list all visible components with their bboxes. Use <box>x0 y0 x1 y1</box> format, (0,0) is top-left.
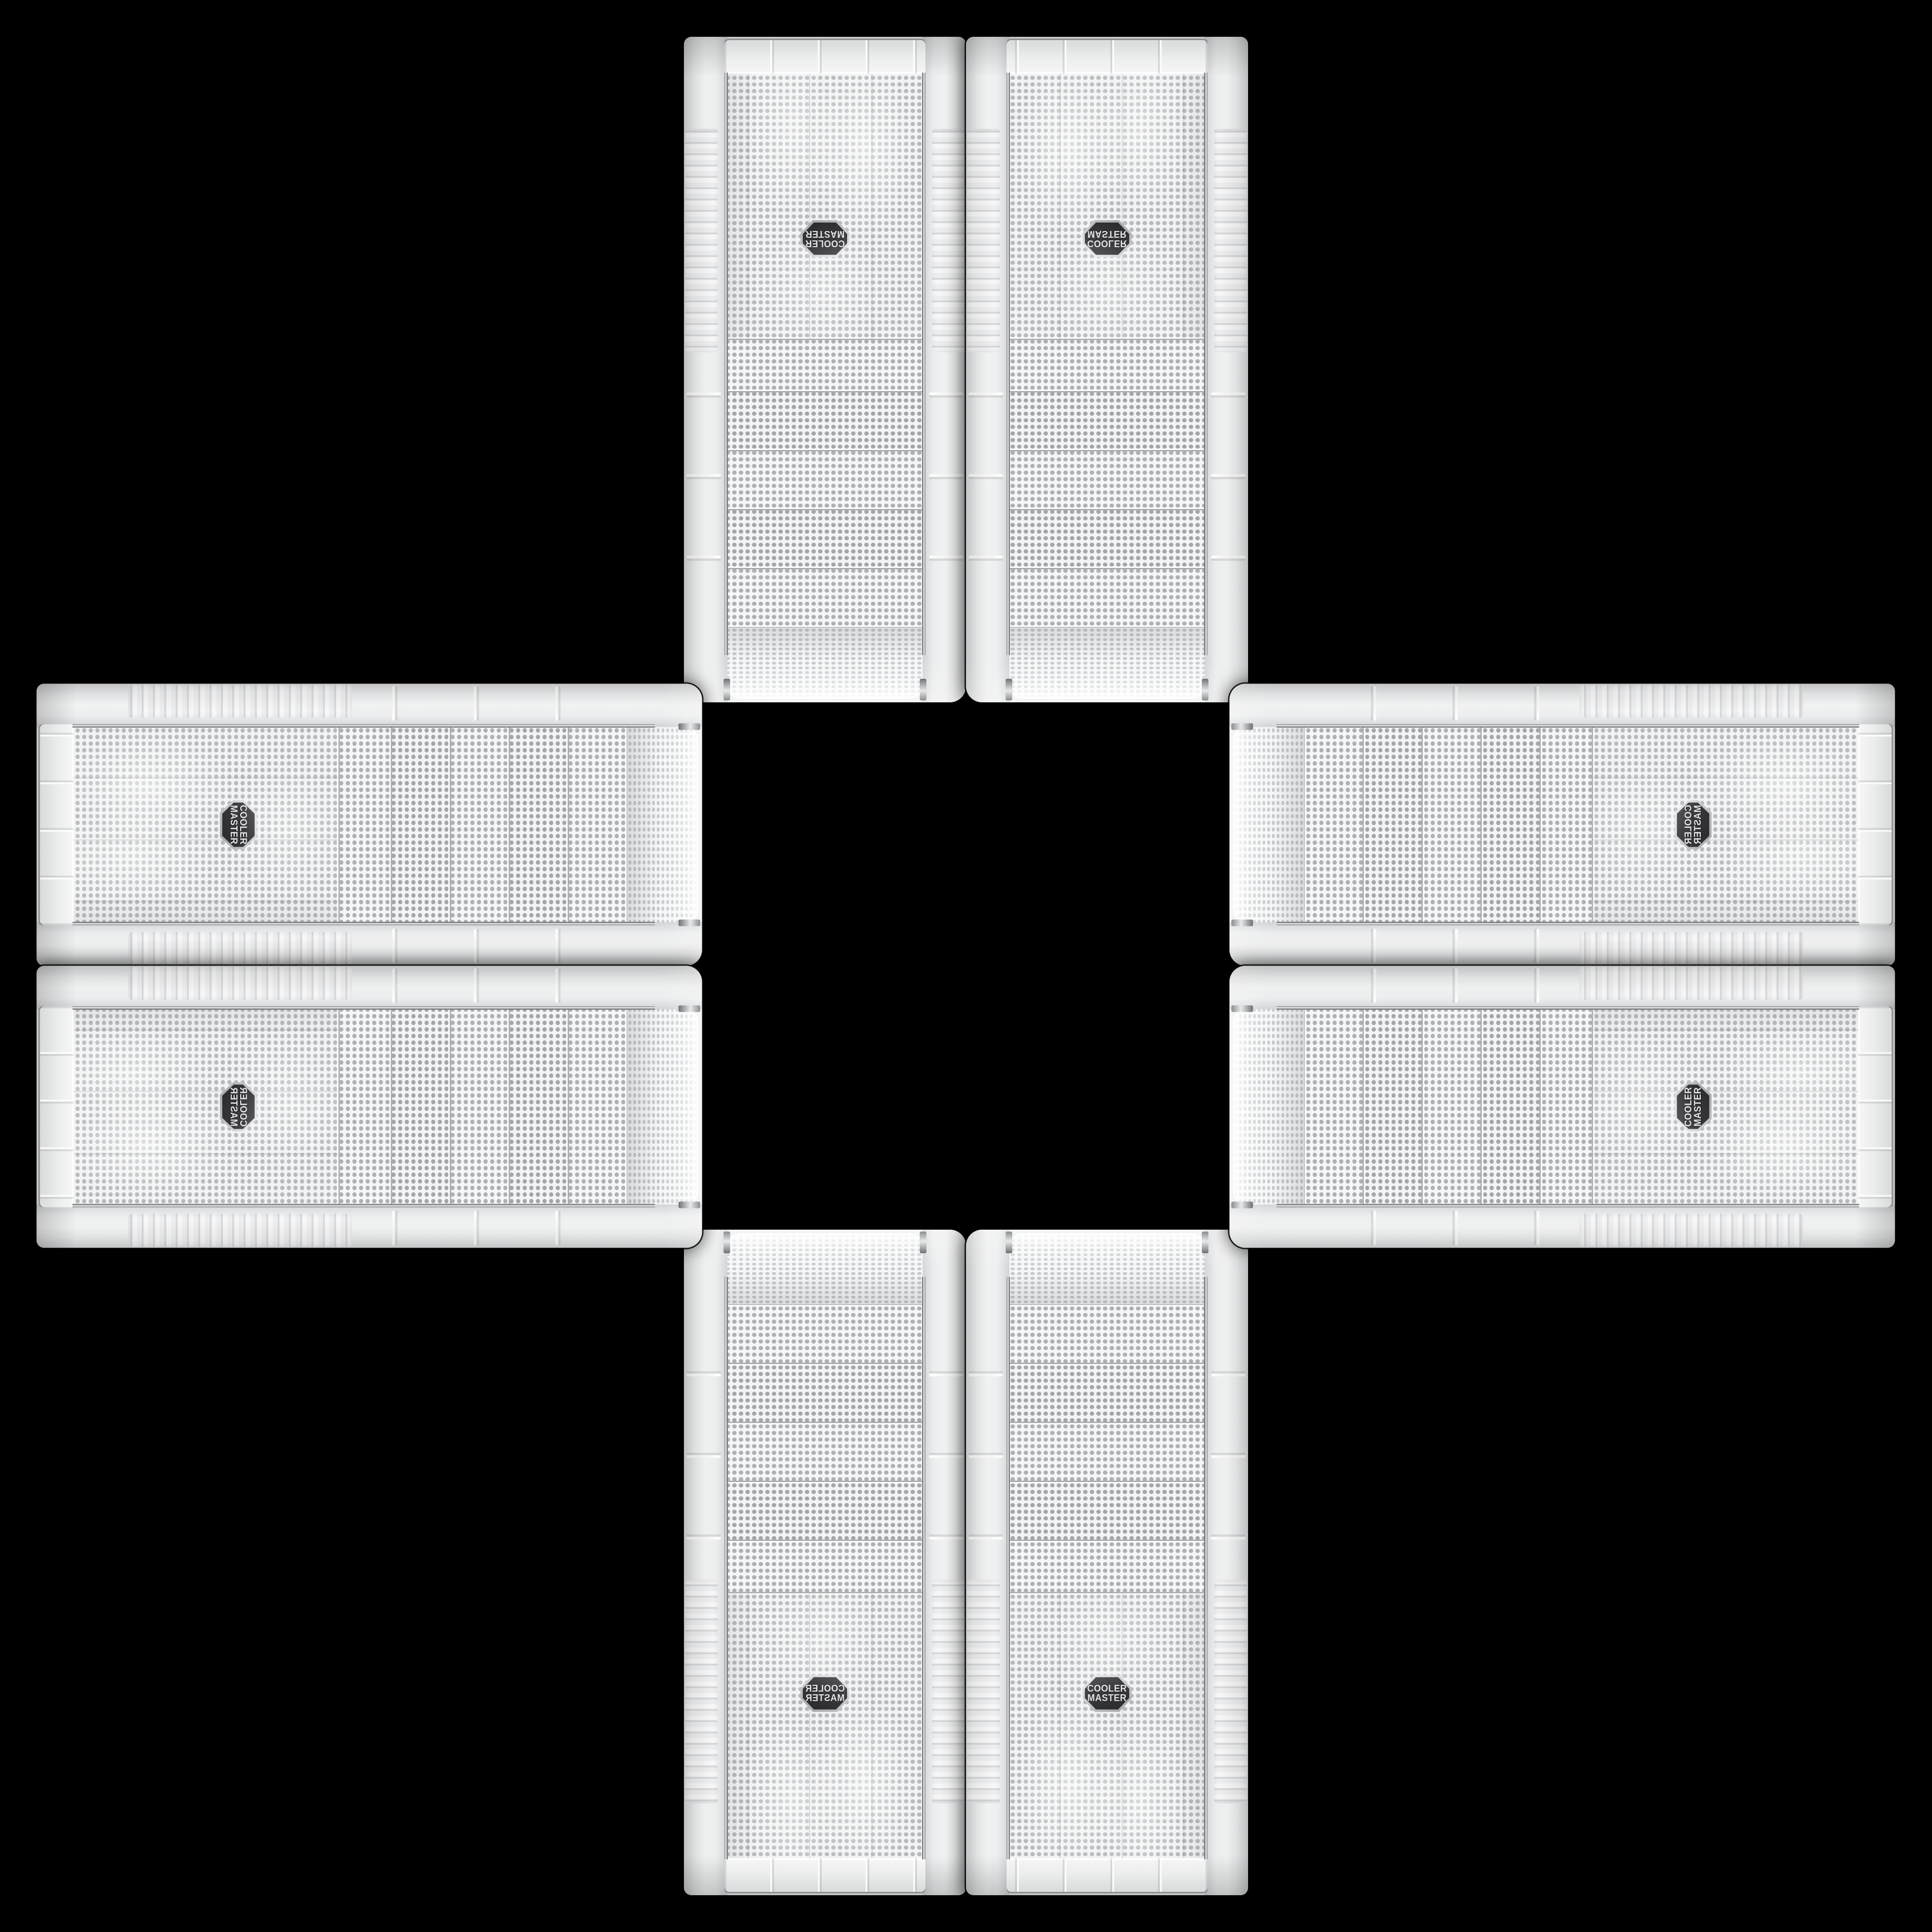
badge-face: COOLER MASTER <box>1085 1677 1129 1710</box>
chrome-trim-left <box>922 73 925 655</box>
case-right-top: COOLER MASTER <box>1230 684 1895 966</box>
curved-mesh-bulge <box>628 727 699 923</box>
rail-chevron-ribs <box>1214 129 1247 352</box>
drive-bay-cover <box>727 1304 923 1363</box>
chrome-corner-tab-left <box>679 1202 700 1208</box>
drive-bay-cover <box>727 569 923 628</box>
mesh-reflection-sheen <box>727 72 923 339</box>
chrome-corner-tab-right <box>679 1006 700 1012</box>
badge-face: COOLER MASTER <box>803 222 847 255</box>
front-mesh-panel: COOLER MASTER <box>37 727 702 923</box>
badge-face: COOLER MASTER <box>222 803 255 847</box>
mesh-reflection-sheen <box>72 727 339 923</box>
drive-bay-covers <box>727 1304 923 1592</box>
badge-text-line1: COOLER <box>1087 238 1127 248</box>
rail-step-notches <box>969 1315 1003 1560</box>
side-rail-right <box>684 37 727 702</box>
badge-face: COOLER MASTER <box>1085 222 1129 255</box>
rail-chevron-ribs <box>1580 1214 1803 1247</box>
chrome-trim-left <box>922 1277 925 1859</box>
rail-chevron-ribs <box>129 967 352 1000</box>
badge-text-line2: MASTER <box>805 229 844 239</box>
drive-bay-cover <box>1009 1481 1205 1540</box>
curved-mesh-bulge <box>727 1233 923 1304</box>
drive-bay-cover <box>1304 1009 1363 1205</box>
chrome-trim-right <box>724 73 728 655</box>
side-rail-left <box>966 37 1009 702</box>
sculpted-cap-bar <box>1007 40 1207 74</box>
chrome-corner-tab-left <box>1006 679 1012 700</box>
cooler-master-badge: COOLER MASTER <box>800 1674 849 1712</box>
rail-step-notches <box>969 372 1003 617</box>
rail-chevron-ribs <box>1580 685 1803 718</box>
chrome-corner-tab-right <box>724 679 730 700</box>
chrome-trim-left <box>1277 1204 1859 1207</box>
lower-mesh-panel: COOLER MASTER <box>1592 727 1860 923</box>
rail-step-notches <box>1315 687 1560 721</box>
drive-bay-cover <box>1304 727 1363 923</box>
drive-bay-cover <box>1540 727 1599 923</box>
mesh-reflection-sheen <box>1009 72 1205 339</box>
mesh-reflection-sheen <box>727 1593 923 1860</box>
front-mesh-panel: COOLER MASTER <box>1009 37 1205 702</box>
cooler-master-badge: COOLER MASTER <box>1083 220 1132 258</box>
chrome-corner-tab-left <box>1232 1202 1253 1208</box>
rail-chevron-ribs <box>129 685 352 718</box>
drive-bay-cover <box>727 1481 923 1540</box>
rail-step-notches <box>1211 372 1245 617</box>
front-mesh-panel: COOLER MASTER <box>1230 727 1895 923</box>
lower-mesh-panel: COOLER MASTER <box>72 1009 340 1205</box>
drive-bay-cover <box>392 727 451 923</box>
chrome-trim-right <box>1204 73 1207 655</box>
drive-bay-covers <box>1009 340 1205 628</box>
case-right-bottom: COOLER MASTER <box>1230 966 1895 1248</box>
chrome-trim-right <box>1204 1277 1207 1859</box>
sculpted-cap-bar <box>1858 1007 1892 1207</box>
drive-bay-covers <box>1009 1304 1205 1592</box>
chrome-corner-tab-right <box>724 1232 730 1253</box>
chrome-corner-tab-left <box>679 724 700 730</box>
chrome-corner-tab-left <box>920 679 926 700</box>
chrome-trim-right <box>724 1277 728 1859</box>
badge-face: COOLER MASTER <box>1677 1085 1710 1129</box>
mesh-reflection-sheen <box>72 1009 339 1205</box>
chrome-trim-right <box>73 922 655 925</box>
drive-bay-cover <box>569 1009 628 1205</box>
drive-bay-covers <box>340 1009 628 1205</box>
chrome-trim-left <box>1007 1277 1010 1859</box>
rail-step-notches <box>929 372 963 617</box>
sculpted-cap-bar <box>724 1858 925 1892</box>
badge-text-line2: MASTER <box>805 1693 844 1703</box>
chrome-corner-tab-right <box>1232 1006 1253 1012</box>
case-left-top: COOLER MASTER <box>37 684 702 966</box>
sculpted-cap-bar <box>1007 1858 1207 1892</box>
rail-step-notches <box>1315 929 1560 963</box>
badge-text-line2: MASTER <box>1693 1087 1703 1126</box>
cooler-master-badge: COOLER MASTER <box>800 220 849 258</box>
chrome-corner-tab-right <box>1202 1232 1208 1253</box>
rail-chevron-ribs <box>932 1580 965 1803</box>
sculpted-cap-bar <box>40 724 74 925</box>
front-mesh-panel: COOLER MASTER <box>1009 1230 1205 1895</box>
rail-chevron-ribs <box>967 129 1000 352</box>
case-top-left: COOLER MASTER <box>684 37 966 702</box>
rail-step-notches <box>372 969 617 1003</box>
badge-text-line2: MASTER <box>229 1087 239 1126</box>
rail-chevron-ribs <box>932 129 965 352</box>
chrome-trim-left <box>73 724 655 728</box>
cooler-master-badge: COOLER MASTER <box>1674 800 1712 849</box>
case-top-right: COOLER MASTER <box>966 37 1248 702</box>
mesh-reflection-sheen <box>1593 1009 1860 1205</box>
badge-text-line2: MASTER <box>1087 229 1126 239</box>
front-mesh-panel: COOLER MASTER <box>727 37 923 702</box>
drive-bay-cover <box>1481 727 1540 923</box>
case-bottom-left: COOLER MASTER <box>684 1230 966 1895</box>
curved-mesh-bulge <box>727 628 923 699</box>
drive-bay-cover <box>1009 451 1205 510</box>
rail-chevron-ribs <box>1214 1580 1247 1803</box>
side-rail-left <box>923 1230 966 1895</box>
chrome-corner-tab-left <box>1006 1232 1012 1253</box>
rail-step-notches <box>372 1211 617 1245</box>
badge-text-line1: COOLER <box>1087 1683 1127 1693</box>
drive-bay-covers <box>727 340 923 628</box>
side-rail-right <box>37 923 702 966</box>
mesh-reflection-sheen <box>1593 727 1860 923</box>
side-rail-left <box>1230 684 1895 727</box>
curved-mesh-bulge <box>1009 628 1205 699</box>
drive-bay-cover <box>510 727 569 923</box>
rail-chevron-ribs <box>1580 967 1803 1000</box>
drive-bay-cover <box>1363 727 1422 923</box>
chrome-trim-left <box>1277 724 1859 728</box>
drive-bay-cover <box>1363 1009 1422 1205</box>
drive-bay-covers <box>340 727 628 923</box>
drive-bay-cover <box>1422 1009 1481 1205</box>
rail-step-notches <box>687 1315 721 1560</box>
chrome-corner-tab-left <box>920 1232 926 1253</box>
rail-chevron-ribs <box>967 1580 1000 1803</box>
rail-step-notches <box>1211 1315 1245 1560</box>
drive-bay-cover <box>451 727 510 923</box>
side-rail-left <box>966 1230 1009 1895</box>
case-left-bottom: COOLER MASTER <box>37 966 702 1248</box>
sculpted-cap-bar <box>724 40 925 74</box>
badge-face: COOLER MASTER <box>222 1085 255 1129</box>
drive-bay-covers <box>1304 1009 1592 1205</box>
side-rail-left <box>37 1205 702 1248</box>
chrome-corner-tab-left <box>1232 724 1253 730</box>
badge-face: COOLER MASTER <box>803 1677 847 1710</box>
drive-bay-cover <box>333 1009 392 1205</box>
badge-face: COOLER MASTER <box>1677 803 1710 847</box>
lower-mesh-panel: COOLER MASTER <box>727 72 923 340</box>
badge-text-line2: MASTER <box>229 805 239 844</box>
lower-mesh-panel: COOLER MASTER <box>1009 72 1205 340</box>
badge-text-line1: COOLER <box>238 1087 248 1126</box>
chrome-trim-left <box>73 1204 655 1207</box>
chrome-corner-tab-right <box>679 920 700 926</box>
drive-bay-cover <box>1009 1304 1205 1363</box>
rail-chevron-ribs <box>685 129 718 352</box>
drive-bay-cover <box>451 1009 510 1205</box>
front-mesh-panel: COOLER MASTER <box>1230 1009 1895 1205</box>
rail-step-notches <box>1315 969 1560 1003</box>
rail-chevron-ribs <box>129 1214 352 1247</box>
drive-bay-cover <box>510 1009 569 1205</box>
case-bottom-right: COOLER MASTER <box>966 1230 1248 1895</box>
chrome-trim-left <box>1007 73 1010 655</box>
curved-mesh-bulge <box>1233 727 1304 923</box>
sculpted-cap-bar <box>1858 724 1892 925</box>
drive-bay-cover <box>1009 510 1205 569</box>
cooler-master-badge: COOLER MASTER <box>220 1083 258 1132</box>
drive-bay-cover <box>1009 333 1205 392</box>
drive-bay-cover <box>1009 1363 1205 1422</box>
drive-bay-cover <box>727 1540 923 1599</box>
drive-bay-cover <box>727 1422 923 1481</box>
lower-mesh-panel: COOLER MASTER <box>72 727 340 923</box>
rail-step-notches <box>929 1315 963 1560</box>
badge-text-line1: COOLER <box>1683 1087 1693 1126</box>
badge-text-line1: COOLER <box>805 238 845 248</box>
badge-text-line2: MASTER <box>1693 805 1703 844</box>
rail-chevron-ribs <box>685 1580 718 1803</box>
side-rail-right <box>1230 923 1895 966</box>
mesh-reflection-sheen <box>1009 1593 1205 1860</box>
rail-step-notches <box>1315 1211 1560 1245</box>
drive-bay-cover <box>569 727 628 923</box>
drive-bay-cover <box>1009 1422 1205 1481</box>
drive-bay-cover <box>1009 392 1205 451</box>
drive-bay-cover <box>727 510 923 569</box>
curved-mesh-bulge <box>1233 1009 1304 1205</box>
cooler-master-badge: COOLER MASTER <box>1083 1674 1132 1712</box>
badge-text-line1: COOLER <box>805 1683 845 1693</box>
sculpted-cap-bar <box>40 1007 74 1207</box>
drive-bay-cover <box>1481 1009 1540 1205</box>
badge-text-line1: COOLER <box>238 805 248 844</box>
side-rail-right <box>37 966 702 1009</box>
drive-bay-cover <box>727 451 923 510</box>
side-rail-left <box>1230 1205 1895 1248</box>
rail-step-notches <box>372 929 617 963</box>
drive-bay-cover <box>727 392 923 451</box>
badge-text-line1: COOLER <box>1683 805 1693 844</box>
chrome-trim-right <box>73 1007 655 1010</box>
curved-mesh-bulge <box>1009 1233 1205 1304</box>
drive-bay-cover <box>1009 1540 1205 1599</box>
drive-bay-cover <box>1422 727 1481 923</box>
front-mesh-panel: COOLER MASTER <box>37 1009 702 1205</box>
front-mesh-panel: COOLER MASTER <box>727 1230 923 1895</box>
collage-stage: COOLER MASTER <box>0 0 1932 1932</box>
lower-mesh-panel: COOLER MASTER <box>1009 1592 1205 1860</box>
side-rail-right <box>1205 37 1248 702</box>
rail-chevron-ribs <box>129 932 352 965</box>
drive-bay-covers <box>1304 727 1592 923</box>
badge-text-line2: MASTER <box>1087 1693 1126 1703</box>
cooler-master-badge: COOLER MASTER <box>220 800 258 849</box>
cooler-master-badge: COOLER MASTER <box>1674 1083 1712 1132</box>
drive-bay-cover <box>727 333 923 392</box>
drive-bay-cover <box>1540 1009 1599 1205</box>
chrome-trim-right <box>1277 922 1859 925</box>
chrome-corner-tab-right <box>1202 679 1208 700</box>
side-rail-left <box>37 684 702 727</box>
drive-bay-cover <box>727 1363 923 1422</box>
lower-mesh-panel: COOLER MASTER <box>727 1592 923 1860</box>
side-rail-right <box>1205 1230 1248 1895</box>
rail-chevron-ribs <box>1580 932 1803 965</box>
rail-step-notches <box>687 372 721 617</box>
side-rail-right <box>684 1230 727 1895</box>
side-rail-right <box>1230 966 1895 1009</box>
drive-bay-cover <box>392 1009 451 1205</box>
lower-mesh-panel: COOLER MASTER <box>1592 1009 1860 1205</box>
side-rail-left <box>923 37 966 702</box>
curved-mesh-bulge <box>628 1009 699 1205</box>
rail-step-notches <box>372 687 617 721</box>
chrome-corner-tab-right <box>1232 920 1253 926</box>
drive-bay-cover <box>333 727 392 923</box>
chrome-trim-right <box>1277 1007 1859 1010</box>
drive-bay-cover <box>1009 569 1205 628</box>
